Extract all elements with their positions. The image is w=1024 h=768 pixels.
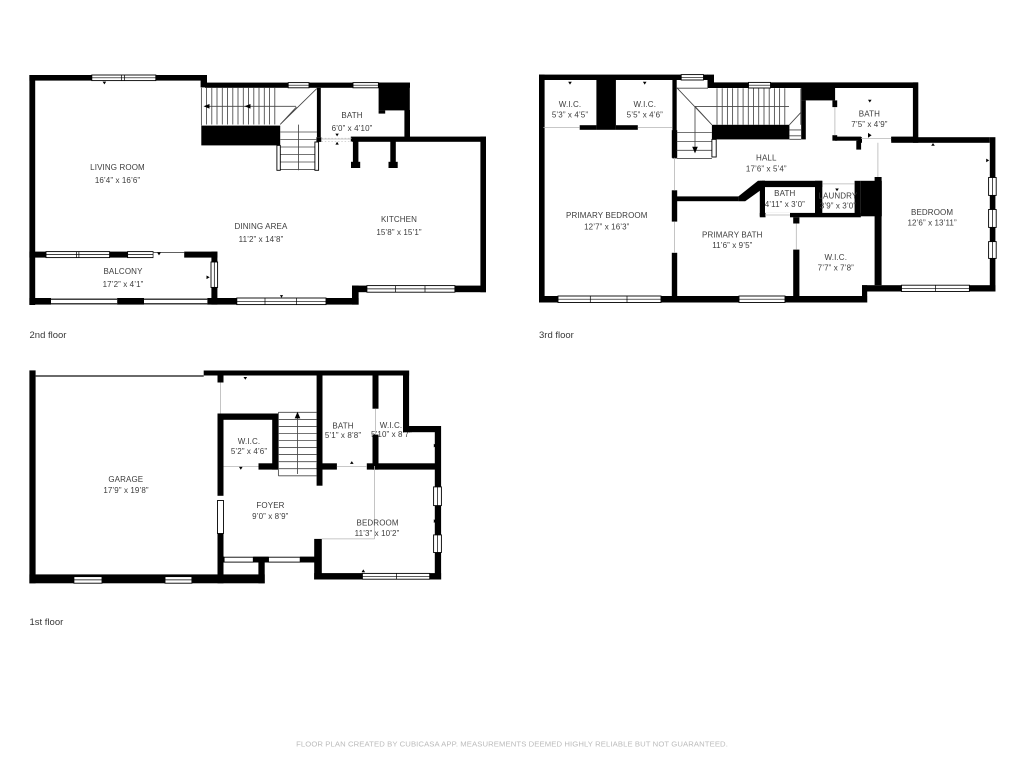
svg-text:3’9” x 3’0”: 3’9” x 3’0” [820,202,856,211]
svg-text:16’4” x 16’6”: 16’4” x 16’6” [95,176,141,185]
svg-text:W.I.C.: W.I.C. [380,421,403,430]
svg-text:3rd floor: 3rd floor [539,330,574,341]
svg-text:12’6” x 13’11”: 12’6” x 13’11” [907,219,957,228]
svg-text:BATH: BATH [774,189,795,198]
svg-text:BEDROOM: BEDROOM [911,208,953,217]
svg-text:2nd floor: 2nd floor [30,330,67,341]
svg-text:5’1” x 8’8”: 5’1” x 8’8” [325,431,361,440]
svg-text:5’5” x 4’6”: 5’5” x 4’6” [627,111,663,120]
svg-text:5’2” x 4’6”: 5’2” x 4’6” [231,447,267,456]
svg-text:17’6” x 5’4”: 17’6” x 5’4” [746,165,787,174]
svg-text:9’0” x 8’9”: 9’0” x 8’9” [252,512,288,521]
svg-text:7’7” x 7’8”: 7’7” x 7’8” [818,264,854,273]
svg-text:6’0” x 4’10”: 6’0” x 4’10” [332,124,373,133]
svg-text:FOYER: FOYER [256,501,284,510]
svg-text:1st floor: 1st floor [30,617,64,628]
svg-text:7’5” x 4’9”: 7’5” x 4’9” [851,120,887,129]
svg-text:15’8” x 15’1”: 15’8” x 15’1” [376,228,422,237]
svg-text:W.I.C.: W.I.C. [559,100,582,109]
svg-text:GARAGE: GARAGE [108,475,143,484]
svg-text:BATH: BATH [859,109,880,118]
svg-text:PRIMARY BATH: PRIMARY BATH [702,230,763,239]
svg-text:11’2” x 14’8”: 11’2” x 14’8” [239,235,284,244]
svg-text:LAUNDRY: LAUNDRY [818,192,857,201]
svg-text:17’2” x 4’1”: 17’2” x 4’1” [103,280,144,289]
svg-text:5’3” x 4’5”: 5’3” x 4’5” [552,111,588,120]
svg-text:PRIMARY BEDROOM: PRIMARY BEDROOM [566,211,648,220]
svg-text:17’9” x 19’8”: 17’9” x 19’8” [103,486,149,495]
svg-text:BALCONY: BALCONY [103,267,143,276]
svg-text:BEDROOM: BEDROOM [357,519,399,528]
svg-text:HALL: HALL [756,154,777,163]
svg-text:BATH: BATH [341,111,362,120]
svg-text:LIVING ROOM: LIVING ROOM [90,163,145,172]
svg-text:DINING AREA: DINING AREA [235,222,288,231]
svg-text:W.I.C.: W.I.C. [238,437,261,446]
svg-text:11’6” x 9’5”: 11’6” x 9’5” [712,241,752,250]
svg-text:FLOOR PLAN CREATED BY CUBICASA: FLOOR PLAN CREATED BY CUBICASA APP. MEAS… [296,740,728,749]
svg-text:KITCHEN: KITCHEN [381,215,417,224]
svg-text:11’3” x 10’2”: 11’3” x 10’2” [355,529,400,538]
svg-text:12’7” x 16’3”: 12’7” x 16’3” [584,222,630,231]
svg-text:W.I.C.: W.I.C. [634,100,657,109]
svg-text:BATH: BATH [332,421,353,430]
svg-text:W.I.C.: W.I.C. [825,253,848,262]
svg-text:4’11” x 3’0”: 4’11” x 3’0” [765,200,805,209]
